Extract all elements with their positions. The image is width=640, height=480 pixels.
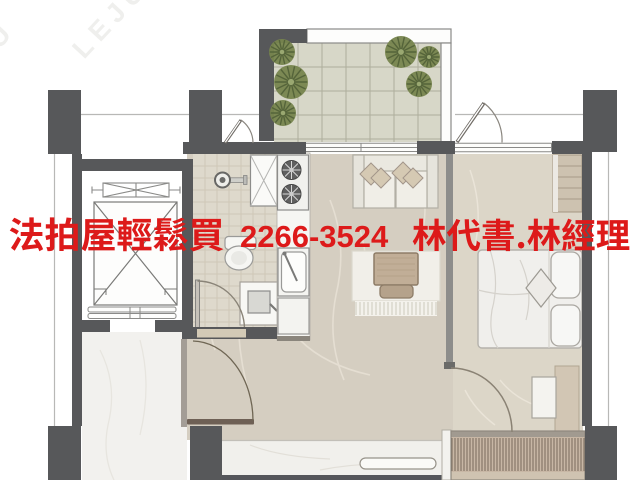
svg-text:2266-3524: 2266-3524: [240, 219, 389, 254]
